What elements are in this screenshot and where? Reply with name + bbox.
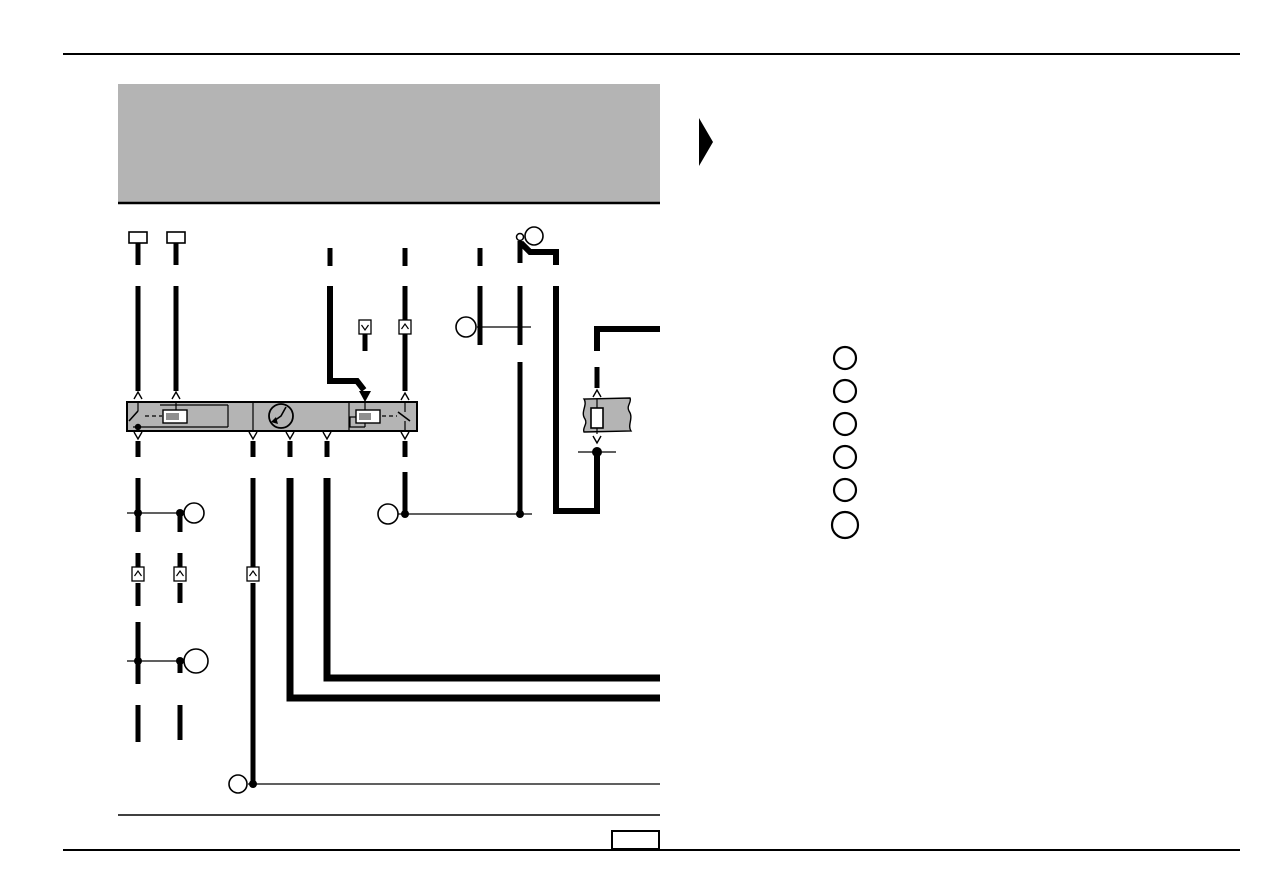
relay-panel [127,391,417,431]
legend-column [832,347,858,538]
thin-connections [127,327,660,784]
terminal-ring [517,234,524,241]
terminal-box [129,232,147,243]
junction-dot [516,510,524,518]
fuse [591,408,603,428]
direction-arrow-icon [401,393,409,400]
wiring-diagram-canvas [0,0,1263,893]
bolt-terminal-dot [592,447,602,457]
callout-circle [456,317,476,337]
direction-arrow-icon [593,436,601,443]
wire-bus-elbow [290,478,660,698]
junction-dot [401,510,409,518]
entry-arrowhead [359,391,371,402]
direction-arrow-icon [286,432,294,439]
wire-elbow [330,286,364,390]
connector-square [399,320,411,334]
connector-square [247,567,259,581]
manual-page [0,0,1263,893]
direction-arrow-icon [172,392,180,399]
direction-arrow-icon [249,432,257,439]
relay-coil-core [359,413,371,420]
direction-arrow-icon [323,432,331,439]
connector-square [359,320,371,334]
title-block [118,84,660,203]
junction-dot [134,657,142,665]
relay-coil-core [166,413,179,420]
junction-dot [176,509,184,517]
page-chrome [63,54,1240,850]
legend-circle [834,479,856,501]
wire-bus-elbow [327,478,660,678]
legend-circle [834,347,856,369]
callout-circle [378,504,398,524]
junction-dot [249,780,257,788]
wire-elbow [597,329,660,351]
callout-circle [184,503,204,523]
legend-circle [834,446,856,468]
callout-circle [525,227,543,245]
direction-arrow-icon [401,432,409,439]
connector-square [132,567,144,581]
terminal-box [167,232,185,243]
legend-circle [834,380,856,402]
fuse-section [583,398,631,434]
page-number-box [612,831,659,849]
continuation-arrow-icon [699,118,713,166]
callout-circle [229,775,247,793]
legend-circle [832,512,858,538]
callout-circles [184,227,543,793]
connector-square [174,567,186,581]
junction-dot [176,657,184,665]
legend-circle [834,413,856,435]
wire-elbow [521,243,556,265]
callout-circle [184,649,208,673]
direction-arrow-icon [593,390,601,397]
direction-arrow-icon [134,392,142,399]
direction-arrow-icon [134,432,142,439]
junction-dot [134,509,142,517]
